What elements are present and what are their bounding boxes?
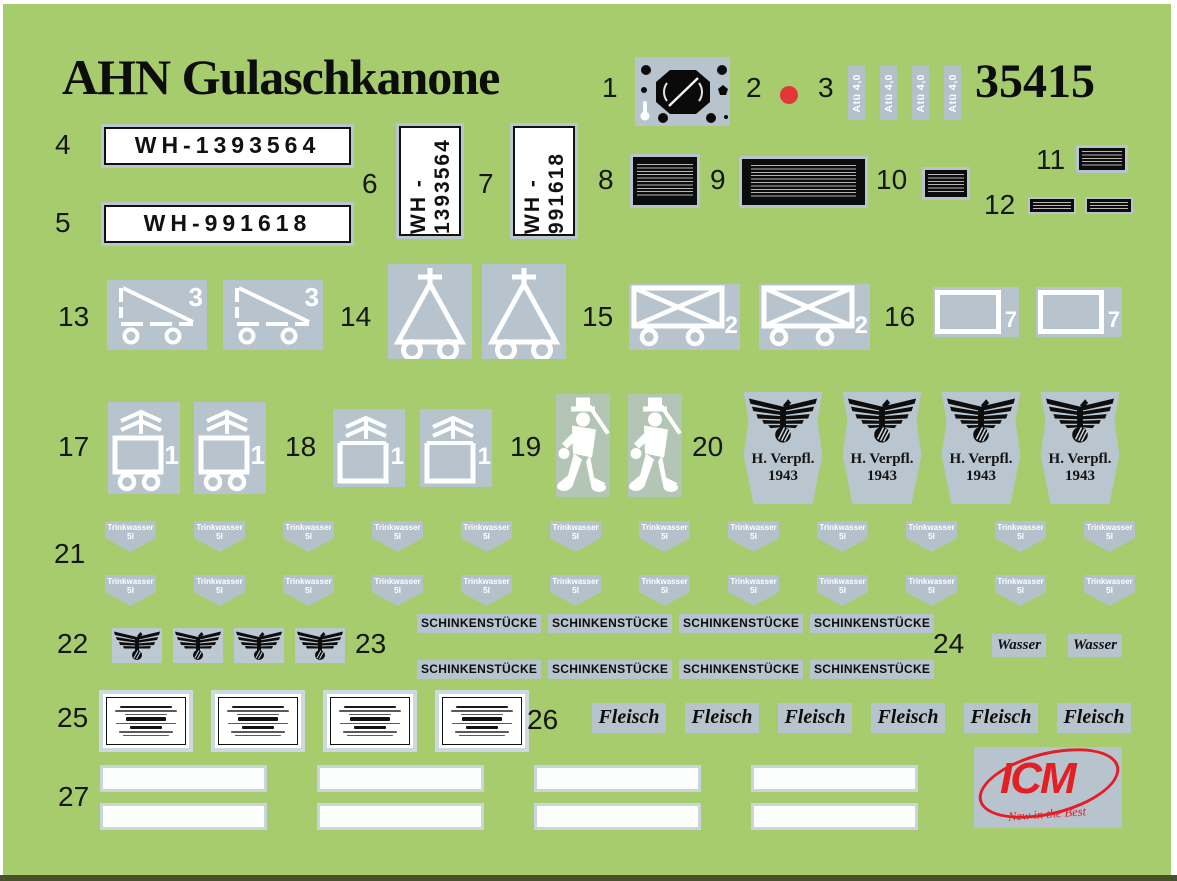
item-number-3: 3 bbox=[818, 74, 834, 102]
trinkwasser-volume: 5l bbox=[995, 532, 1046, 541]
item-number-7: 7 bbox=[478, 170, 494, 198]
crossed-box-icon bbox=[759, 284, 870, 350]
item-number-21: 21 bbox=[54, 540, 85, 568]
box-outline-icon bbox=[935, 290, 1001, 334]
eagle-shield-decal: H. Verpfl. 1943 bbox=[841, 392, 923, 504]
shield-text-line2: 1943 bbox=[940, 468, 1022, 485]
box-stencil-decal: 7 bbox=[933, 287, 1019, 337]
trinkwasser-decal: Trinkwasser 5l bbox=[283, 575, 334, 606]
trinkwasser-decal: Trinkwasser 5l bbox=[817, 521, 868, 552]
stencil-digit: 1 bbox=[251, 442, 265, 468]
item-number-26: 26 bbox=[527, 706, 558, 734]
certificate-text-lines bbox=[330, 697, 410, 745]
item-number-5: 5 bbox=[55, 209, 71, 237]
stencil-digit: 3 bbox=[305, 284, 319, 310]
item-number-18: 18 bbox=[285, 433, 316, 461]
white-strip-decal bbox=[537, 768, 698, 789]
schinkenstuecke-decal: SCHINKENSTÜCKE bbox=[810, 614, 934, 633]
eagle-emblem-icon bbox=[944, 395, 1018, 445]
crossed-wagon-decal: 2 bbox=[629, 284, 740, 350]
trinkwasser-decal: Trinkwasser 5l bbox=[461, 575, 512, 606]
trinkwasser-decal: Trinkwasser 5l bbox=[639, 521, 690, 552]
item-number-14: 14 bbox=[340, 303, 371, 331]
licence-plate-vertical: WH - 1393564 bbox=[399, 126, 461, 236]
white-strip-decal bbox=[103, 768, 264, 789]
trinkwasser-decal: Trinkwasser 5l bbox=[550, 521, 601, 552]
schinkenstuecke-decal: SCHINKENSTÜCKE bbox=[810, 660, 934, 679]
item-number-10: 10 bbox=[876, 166, 907, 194]
pressure-tag-decal: Atü 4,0 bbox=[944, 66, 961, 120]
white-strip-grid bbox=[103, 768, 915, 827]
shield-text-line1: H. Verpfl. bbox=[1039, 451, 1121, 468]
pressure-tag-decal: Atü 4,0 bbox=[880, 66, 897, 120]
fleisch-decal: Fleisch bbox=[685, 703, 759, 733]
fleisch-decal: Fleisch bbox=[592, 703, 666, 733]
eagle-emblem-icon bbox=[746, 395, 820, 445]
trinkwasser-volume: 5l bbox=[105, 586, 156, 595]
stencil-digit: 3 bbox=[189, 284, 203, 310]
shield-text-line1: H. Verpfl. bbox=[742, 451, 824, 468]
fleisch-decal: Fleisch bbox=[778, 703, 852, 733]
gauge-face-icon bbox=[635, 57, 730, 126]
eagle-emblem-icon bbox=[234, 630, 284, 662]
pressure-tag-label: Atü 4,0 bbox=[915, 74, 927, 113]
plate-number: 991618 bbox=[546, 130, 567, 234]
tripod-stencil-decal bbox=[482, 264, 566, 359]
trinkwasser-volume: 5l bbox=[1084, 586, 1135, 595]
schinkenstuecke-decal: SCHINKENSTÜCKE bbox=[548, 660, 672, 679]
certificate-text-lines bbox=[106, 697, 186, 745]
trinkwasser-volume: 5l bbox=[1084, 532, 1135, 541]
schinkenstuecke-decal: SCHINKENSTÜCKE bbox=[548, 614, 672, 633]
trailer-stencil-decal: 3 bbox=[223, 280, 323, 350]
item-number-11: 11 bbox=[1036, 146, 1065, 174]
trinkwasser-decal: Trinkwasser 5l bbox=[194, 521, 245, 552]
wasser-row: Wasser Wasser bbox=[992, 634, 1122, 657]
trinkwasser-decal: Trinkwasser 5l bbox=[105, 575, 156, 606]
fleisch-decal: Fleisch bbox=[1057, 703, 1131, 733]
eagle-emblem-icon bbox=[1043, 395, 1117, 445]
crossed-wagon-row: 2 2 bbox=[629, 284, 870, 350]
fleisch-row: Fleisch FleischFleischFleischFleischFlei… bbox=[592, 703, 1131, 733]
item-number-25: 25 bbox=[57, 704, 88, 732]
trinkwasser-decal: Trinkwasser 5l bbox=[461, 521, 512, 552]
trinkwasser-decal: Trinkwasser 5l bbox=[995, 521, 1046, 552]
item-number-16: 16 bbox=[884, 303, 915, 331]
trinkwasser-volume: 5l bbox=[728, 532, 779, 541]
stencil-digit: 2 bbox=[725, 314, 738, 338]
certificate-label-decal bbox=[327, 694, 413, 748]
instruction-plate-decal bbox=[742, 159, 865, 205]
small-eagle-decal bbox=[173, 628, 223, 663]
eagle-emblem-icon bbox=[173, 630, 223, 662]
white-strip-decal bbox=[103, 806, 264, 827]
item-number-19: 19 bbox=[510, 433, 541, 461]
fleisch-decal: Fleisch bbox=[964, 703, 1038, 733]
chimney-sweep-row bbox=[556, 394, 682, 497]
white-strip-decal bbox=[320, 768, 481, 789]
white-strip-decal bbox=[537, 806, 698, 827]
trinkwasser-volume: 5l bbox=[194, 586, 245, 595]
trinkwasser-volume: 5l bbox=[817, 532, 868, 541]
stencil-digit: 1 bbox=[165, 442, 179, 468]
chimney-sweep-icon bbox=[556, 394, 610, 497]
white-strip-decal bbox=[754, 806, 915, 827]
trinkwasser-decal: Trinkwasser 5l bbox=[639, 575, 690, 606]
trinkwasser-decal: Trinkwasser 5l bbox=[817, 575, 868, 606]
item-number-2: 2 bbox=[746, 74, 762, 102]
instruction-strip-decal bbox=[1087, 199, 1131, 212]
trinkwasser-volume: 5l bbox=[817, 586, 868, 595]
chimney-sweep-decal bbox=[628, 394, 682, 497]
antenna-wagon-decal: 1 bbox=[108, 402, 180, 494]
trinkwasser-decal: Trinkwasser 5l bbox=[105, 521, 156, 552]
eagle-emblem-icon bbox=[295, 630, 345, 662]
eagle-shield-row: H. Verpfl. 1943 H. Ver bbox=[742, 392, 1121, 504]
eagle-shield-decal: H. Verpfl. 1943 bbox=[742, 392, 824, 504]
trailer-stencil-decal: 3 bbox=[107, 280, 207, 350]
wasser-decal: Wasser bbox=[1068, 634, 1122, 657]
pressure-gauge-decal bbox=[635, 57, 730, 126]
certificate-label-decal bbox=[215, 694, 301, 748]
antenna-wagon-decal: 1 bbox=[194, 402, 266, 494]
trinkwasser-decal: Trinkwasser 5l bbox=[728, 575, 779, 606]
small-eagle-decal bbox=[234, 628, 284, 663]
trinkwasser-volume: 5l bbox=[550, 586, 601, 595]
pressure-tag-decal: Atü 4,0 bbox=[848, 66, 865, 120]
licence-plate-vertical: WH - 991618 bbox=[513, 126, 575, 236]
item-number-24: 24 bbox=[933, 630, 964, 658]
trinkwasser-decal: Trinkwasser 5l bbox=[372, 521, 423, 552]
sheet-title: AHN Gulaschkanone bbox=[62, 52, 499, 102]
box-outline-icon bbox=[1038, 290, 1104, 334]
item-number-13: 13 bbox=[58, 303, 89, 331]
stencil-digit: 1 bbox=[478, 445, 491, 469]
trailer-stencil-row: 3 3 bbox=[107, 280, 323, 350]
antenna-box-row: 1 1 bbox=[333, 409, 492, 487]
wasser-decal: Wasser bbox=[992, 634, 1046, 657]
certificate-label-decal bbox=[439, 694, 525, 748]
chimney-sweep-icon bbox=[628, 394, 682, 497]
trinkwasser-volume: 5l bbox=[728, 586, 779, 595]
item-number-23: 23 bbox=[355, 630, 386, 658]
schinkenstuecke-decal: SCHINKENSTÜCKE bbox=[417, 614, 541, 633]
crossed-wagon-decal: 2 bbox=[759, 284, 870, 350]
white-strip-decal bbox=[320, 806, 481, 827]
trinkwasser-volume: 5l bbox=[372, 586, 423, 595]
trinkwasser-volume: 5l bbox=[906, 532, 957, 541]
trinkwasser-grid: Trinkwasser 5l Trinkwasser 5l Trinkwasse… bbox=[105, 521, 1135, 606]
plate-prefix: WH - bbox=[408, 130, 429, 234]
instruction-plate-decal bbox=[925, 170, 967, 197]
item-number-6: 6 bbox=[362, 170, 378, 198]
instruction-strip-row bbox=[1030, 199, 1131, 212]
shield-text-line2: 1943 bbox=[841, 468, 923, 485]
chimney-sweep-decal bbox=[556, 394, 610, 497]
trinkwasser-volume: 5l bbox=[283, 586, 334, 595]
antenna-box-decal: 1 bbox=[333, 409, 405, 487]
kit-number: 35415 bbox=[975, 58, 1095, 106]
shield-text-line2: 1943 bbox=[1039, 468, 1121, 485]
small-eagle-decal bbox=[295, 628, 345, 663]
item-number-9: 9 bbox=[710, 166, 726, 194]
item-number-12: 12 bbox=[984, 191, 1015, 219]
box-stencil-decal: 7 bbox=[1036, 287, 1122, 337]
trinkwasser-volume: 5l bbox=[995, 586, 1046, 595]
crossed-box-icon bbox=[629, 284, 740, 350]
certificate-text-lines bbox=[218, 697, 298, 745]
antenna-box-decal: 1 bbox=[420, 409, 492, 487]
eagle-emblem-icon bbox=[845, 395, 919, 445]
plate-number: 1393564 bbox=[432, 130, 453, 234]
shield-text-line2: 1943 bbox=[742, 468, 824, 485]
trinkwasser-decal: Trinkwasser 5l bbox=[906, 521, 957, 552]
trinkwasser-volume: 5l bbox=[194, 532, 245, 541]
instruction-plate-decal bbox=[1079, 148, 1125, 170]
trinkwasser-decal: Trinkwasser 5l bbox=[194, 575, 245, 606]
schinken-grid: SCHINKENSTÜCKE SCHINKENSTÜCKESCHINKENSTÜ… bbox=[417, 614, 919, 679]
trinkwasser-decal: Trinkwasser 5l bbox=[728, 521, 779, 552]
tripod-outline-icon bbox=[388, 264, 472, 359]
item-number-27: 27 bbox=[58, 783, 89, 811]
stencil-digit: 2 bbox=[855, 314, 868, 338]
pressure-tag-decal: Atü 4,0 bbox=[912, 66, 929, 120]
pressure-tag-label: Atü 4,0 bbox=[851, 74, 863, 113]
shield-text-line1: H. Verpfl. bbox=[940, 451, 1022, 468]
item-number-4: 4 bbox=[55, 131, 71, 159]
sheet-bottom-edge bbox=[0, 875, 1177, 881]
decal-sheet-scan: AHN Gulaschkanone 35415 1 2 3 Atü 4,0 At… bbox=[0, 0, 1177, 881]
eagle-emblem-icon bbox=[112, 630, 162, 662]
item-number-20: 20 bbox=[692, 433, 723, 461]
trinkwasser-volume: 5l bbox=[639, 586, 690, 595]
stencil-digit: 1 bbox=[391, 445, 404, 469]
box-stencil-row: 7 7 bbox=[933, 287, 1122, 337]
pressure-tag-label: Atü 4,0 bbox=[947, 74, 959, 113]
trinkwasser-decal: Trinkwasser 5l bbox=[995, 575, 1046, 606]
plate-prefix: WH - bbox=[522, 130, 543, 234]
trinkwasser-decal: Trinkwasser 5l bbox=[1084, 575, 1135, 606]
trinkwasser-volume: 5l bbox=[639, 532, 690, 541]
item-number-22: 22 bbox=[57, 630, 88, 658]
red-dot-decal bbox=[780, 86, 798, 104]
trinkwasser-decal: Trinkwasser 5l bbox=[1084, 521, 1135, 552]
trinkwasser-volume: 5l bbox=[105, 532, 156, 541]
item-number-8: 8 bbox=[598, 166, 614, 194]
pressure-tag-row: Atü 4,0 Atü 4,0Atü 4,0Atü 4,0 bbox=[848, 66, 961, 120]
instruction-plate-decal bbox=[633, 157, 697, 205]
trinkwasser-volume: 5l bbox=[550, 532, 601, 541]
trinkwasser-volume: 5l bbox=[461, 586, 512, 595]
white-strip-decal bbox=[754, 768, 915, 789]
trinkwasser-volume: 5l bbox=[906, 586, 957, 595]
tripod-stencil-decal bbox=[388, 264, 472, 359]
trinkwasser-volume: 5l bbox=[372, 532, 423, 541]
schinkenstuecke-decal: SCHINKENSTÜCKE bbox=[679, 660, 803, 679]
eagle-shield-decal: H. Verpfl. 1943 bbox=[940, 392, 1022, 504]
tripod-stencil-row bbox=[388, 264, 566, 359]
certificate-text-lines bbox=[442, 697, 522, 745]
item-number-17: 17 bbox=[58, 433, 89, 461]
pressure-tag-label: Atü 4,0 bbox=[883, 74, 895, 113]
tripod-outline-icon bbox=[482, 264, 566, 359]
certificate-row bbox=[103, 694, 525, 748]
stencil-digit: 7 bbox=[1005, 309, 1017, 331]
antenna-wagon-row: 1 1 bbox=[108, 402, 266, 494]
eagle-shield-decal: H. Verpfl. 1943 bbox=[1039, 392, 1121, 504]
small-eagle-decal bbox=[112, 628, 162, 663]
licence-plate-horizontal: WH-1393564 bbox=[104, 127, 351, 165]
trinkwasser-decal: Trinkwasser 5l bbox=[906, 575, 957, 606]
trinkwasser-decal: Trinkwasser 5l bbox=[283, 521, 334, 552]
small-eagle-row bbox=[112, 628, 345, 663]
instruction-strip-decal bbox=[1030, 199, 1074, 212]
certificate-label-decal bbox=[103, 694, 189, 748]
fleisch-decal: Fleisch bbox=[871, 703, 945, 733]
trinkwasser-decal: Trinkwasser 5l bbox=[372, 575, 423, 606]
trinkwasser-volume: 5l bbox=[283, 532, 334, 541]
trinkwasser-decal: Trinkwasser 5l bbox=[550, 575, 601, 606]
schinkenstuecke-decal: SCHINKENSTÜCKE bbox=[417, 660, 541, 679]
licence-plate-horizontal: WH-991618 bbox=[104, 205, 351, 243]
schinkenstuecke-decal: SCHINKENSTÜCKE bbox=[679, 614, 803, 633]
brand-logo: ICM New in the Best bbox=[974, 747, 1122, 828]
brand-name: ICM bbox=[1000, 757, 1075, 801]
trinkwasser-volume: 5l bbox=[461, 532, 512, 541]
item-number-1: 1 bbox=[602, 74, 618, 102]
stencil-digit: 7 bbox=[1108, 309, 1120, 331]
item-number-15: 15 bbox=[582, 303, 613, 331]
shield-text-line1: H. Verpfl. bbox=[841, 451, 923, 468]
